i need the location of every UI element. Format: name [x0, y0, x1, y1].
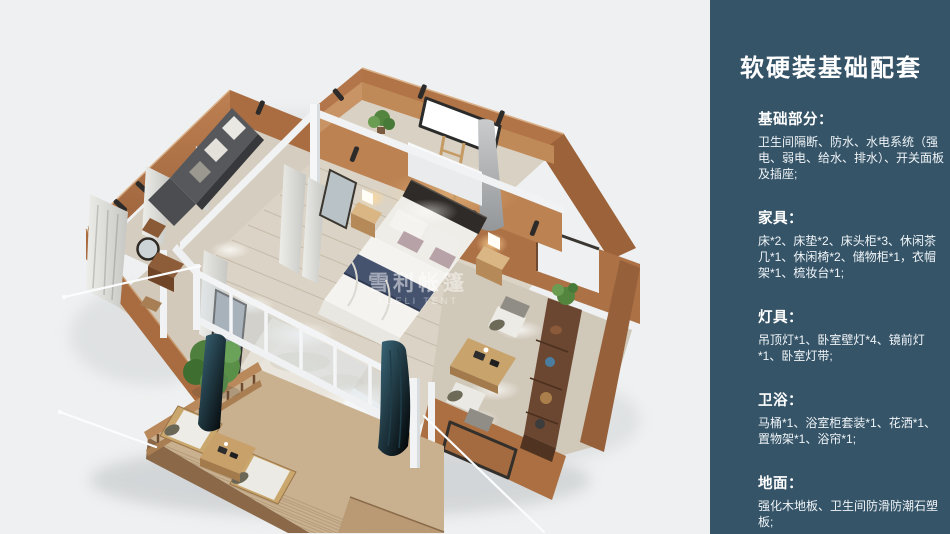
section-body: 马桶*1、浴室柜套装*1、花洒*1、置物架*1、浴帘*1;	[758, 415, 944, 447]
section-heading: 卫浴：	[758, 389, 944, 410]
section-furniture: 家具： 床*2、床垫*2、床头柜*3、休闲茶几*1、休闲椅*2、储物柜*1，衣帽…	[758, 207, 944, 281]
spec-panel: 软硬装基础配套 基础部分： 卫生间隔断、防水、水电系统（强电、弱电、给水、排水）…	[710, 0, 950, 534]
corner-post	[193, 264, 200, 330]
watermark-en: XUELI TENT	[377, 296, 459, 306]
section-heading: 灯具：	[758, 306, 944, 327]
blue-vase	[545, 357, 555, 367]
floorplan-3d-render: 雪利帐篷 XUELI TENT	[0, 0, 710, 534]
basket	[540, 392, 552, 404]
watermark-cn: 雪利帐篷	[368, 271, 468, 295]
slide: 雪利帐篷 XUELI TENT 软硬装基础配套 基础部分： 卫生间隔断、防水、水…	[0, 0, 950, 534]
floorplan-svg: 雪利帐篷 XUELI TENT	[0, 0, 710, 534]
section-body: 卫生间隔断、防水、水电系统（强电、弱电、给水、排水）、开关面板及插座;	[758, 134, 944, 182]
section-bathroom: 卫浴： 马桶*1、浴室柜套装*1、花洒*1、置物架*1、浴帘*1;	[758, 389, 944, 447]
section-heading: 基础部分：	[758, 108, 944, 129]
section-basics: 基础部分： 卫生间隔断、防水、水电系统（强电、弱电、给水、排水）、开关面板及插座…	[758, 108, 944, 182]
panel-title: 软硬装基础配套	[740, 48, 950, 83]
section-flooring: 地面： 强化木地板、卫生间防滑防潮石塑板;	[758, 472, 944, 530]
pottery	[550, 326, 562, 335]
section-body: 强化木地板、卫生间防滑防潮石塑板;	[758, 498, 944, 530]
section-body: 床*2、床垫*2、床头柜*3、休闲茶几*1、休闲椅*2、储物柜*1，衣帽架*1、…	[758, 233, 944, 281]
spec-sections: 基础部分： 卫生间隔断、防水、水电系统（强电、弱电、给水、排水）、开关面板及插座…	[758, 108, 944, 530]
section-heading: 地面：	[758, 472, 944, 493]
section-body: 吊顶灯*1、卧室壁灯*4、镜前灯*1、卧室灯带;	[758, 332, 944, 364]
watermark: 雪利帐篷 XUELI TENT	[368, 271, 468, 306]
section-lighting: 灯具： 吊顶灯*1、卧室壁灯*4、镜前灯*1、卧室灯带;	[758, 306, 944, 364]
section-heading: 家具：	[758, 207, 944, 228]
